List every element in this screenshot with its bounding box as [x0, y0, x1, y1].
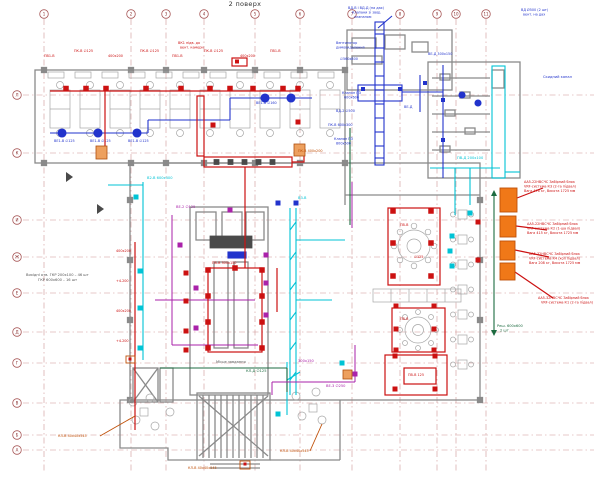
svg-text:ПК-В ∅125: ПК-В ∅125	[74, 49, 93, 53]
svg-text:В2-В 600х300: В2-В 600х300	[147, 176, 173, 180]
svg-text:ПВ-В 300х150: ПВ-В 300х150	[212, 261, 236, 265]
svg-text:ПВ1-В: ПВ1-В	[270, 49, 281, 53]
svg-text:ПК-В 400х200: ПК-В 400х200	[298, 149, 323, 153]
svg-text:ПК-В ∅125: ПК-В ∅125	[204, 49, 223, 53]
svg-text:ПВ-Д 200х100: ПВ-Д 200х100	[457, 156, 484, 160]
svg-text:ВЕ1-В ∅125: ВЕ1-В ∅125	[90, 139, 111, 143]
gray-text-layer: Вихідні отв. ГКР 200х100 – 46 штГКР 600х…	[26, 273, 246, 364]
svg-text:АА5-22НВСЧС Забірний блок: АА5-22НВСЧС Забірний блок	[524, 180, 575, 184]
svg-text:8: 8	[399, 12, 402, 17]
grid-bubbles: 1234567891011ЛКИЖЕДГВБА	[13, 10, 491, 455]
svg-text:ПК-В 600х300: ПК-В 600х300	[328, 123, 353, 127]
svg-text:10: 10	[453, 12, 459, 17]
svg-text:ГКР 600х600 – 16 шт: ГКР 600х600 – 16 шт	[38, 278, 77, 282]
walls-layer	[35, 30, 520, 468]
svg-text:КЛ-В 40х40х545: КЛ-В 40х40х545	[280, 449, 309, 453]
svg-text:Клапан ПЗ: Клапан ПЗ	[334, 137, 353, 141]
svg-text:Вага 476 кг, Висота 1725 мм: Вага 476 кг, Висота 1725 мм	[524, 189, 576, 193]
svg-text:ВЕ-Д: ВЕ-Д	[404, 105, 413, 109]
svg-text:400х200: 400х200	[116, 309, 131, 313]
svg-text:Л: Л	[15, 93, 18, 98]
svg-text:VRF-система К1 (2-га підвал): VRF-система К1 (2-га підвал)	[541, 301, 594, 305]
svg-text:1: 1	[43, 12, 46, 17]
svg-text:ПВ1-В: ПВ1-В	[44, 54, 55, 58]
svg-text:VRF-система К3 (2-га підвал): VRF-система К3 (2-га підвал)	[524, 185, 577, 189]
svg-text:400х200: 400х200	[108, 54, 123, 58]
svg-text:А: А	[16, 448, 19, 453]
svg-text:ВЕ1-В ∅160: ВЕ1-В ∅160	[256, 101, 277, 105]
svg-text:Місце завдання: Місце завдання	[216, 360, 246, 364]
svg-text:∅560х800: ∅560х800	[340, 57, 358, 61]
svg-text:600х600: 600х600	[344, 96, 359, 100]
svg-text:400х200: 400х200	[240, 54, 255, 58]
svg-text:вент. на дах: вент. на дах	[523, 13, 545, 17]
svg-text:Вага 208 кг, Висота 1725 мм: Вага 208 кг, Висота 1725 мм	[529, 261, 581, 265]
svg-text:+4.200: +4.200	[116, 279, 129, 283]
svg-text:димовидалення: димовидалення	[336, 46, 365, 50]
svg-text:300х150: 300х150	[298, 359, 315, 363]
svg-text:ВД Ø500 (2 шт): ВД Ø500 (2 шт)	[521, 7, 549, 12]
svg-text:ВЕ1-В ∅125: ВЕ1-В ∅125	[128, 139, 149, 143]
svg-text:Б: Б	[16, 433, 19, 438]
svg-text:клапаном: клапаном	[354, 15, 372, 19]
svg-text:Клапан ПЗ: Клапан ПЗ	[342, 91, 361, 95]
svg-text:АА5-32НВСЧС Забірний блок: АА5-32НВСЧС Забірний блок	[529, 252, 580, 256]
svg-text:VRF-система К2 (1-ша підвал): VRF-система К2 (1-ша підвал)	[527, 227, 581, 231]
svg-text:VRF-система К4 (хол підвал): VRF-система К4 (хол підвал)	[529, 257, 581, 261]
svg-text:ВЕ1-В ∅125: ВЕ1-В ∅125	[54, 139, 75, 143]
svg-text:ПК-В ∅125: ПК-В ∅125	[140, 49, 159, 53]
svg-text:ВД-В і ВД-Д (на дах): ВД-В і ВД-Д (на дах)	[348, 6, 385, 10]
svg-text:Реш. 600х600: Реш. 600х600	[497, 324, 524, 328]
svg-text:В: В	[16, 401, 19, 406]
svg-text:400х200: 400х200	[116, 249, 131, 253]
svg-text:вент. камери: вент. камери	[180, 46, 204, 50]
svg-text:4: 4	[203, 12, 206, 17]
svg-text:В3-В: В3-В	[298, 196, 307, 200]
svg-text:АА5-22НВСЧС Забірний блок: АА5-22НВСЧС Забірний блок	[527, 222, 578, 226]
svg-text:КЛ-В 40х40х545: КЛ-В 40х40х545	[188, 466, 217, 470]
svg-text:ПВ1-В: ПВ1-В	[172, 54, 183, 58]
plan-svg: 1234567891011ЛКИЖЕДГВБАВ2-В 600х300В3-ВП…	[0, 0, 600, 484]
svg-text:Клапани зі звор.: Клапани зі звор.	[352, 11, 381, 15]
svg-text:Вихідні отв. ГКР 200х100 – 46: Вихідні отв. ГКР 200х100 – 46 шт	[26, 273, 89, 277]
svg-text:К: К	[16, 151, 19, 156]
svg-text:2: 2	[130, 12, 133, 17]
svg-text:ПВ-В 125: ПВ-В 125	[408, 373, 424, 377]
floor-plan-canvas: 2 поверх 1234567891011ЛКИЖЕДГВБАВ2-В 600…	[0, 0, 600, 484]
svg-text:2 шт: 2 шт	[500, 329, 509, 333]
svg-text:ПВ-В: ПВ-В	[400, 223, 409, 227]
svg-text:+4.200: +4.200	[116, 339, 129, 343]
svg-text:800х500: 800х500	[336, 142, 351, 146]
svg-text:9: 9	[436, 12, 439, 17]
svg-text:ВЕ-3 ∅250: ВЕ-3 ∅250	[326, 384, 346, 388]
svg-text:АА5-32НВСЧС Забірний блок: АА5-32НВСЧС Забірний блок	[538, 296, 589, 300]
svg-text:И: И	[16, 218, 19, 223]
svg-text:КЛ-В 40х40х545: КЛ-В 40х40х545	[58, 434, 87, 438]
svg-text:6: 6	[299, 12, 302, 17]
svg-text:ПВ-В: ПВ-В	[400, 317, 409, 321]
svg-text:Вага 415 кг, Висота 1725 мм: Вага 415 кг, Висота 1725 мм	[527, 231, 579, 235]
svg-text:ВК1 підв. до: ВК1 підв. до	[178, 41, 200, 45]
svg-text:ВД-2 ∅500: ВД-2 ∅500	[336, 109, 355, 113]
svg-text:3: 3	[165, 12, 168, 17]
svg-text:ВЕ-Д 300х150: ВЕ-Д 300х150	[428, 52, 452, 56]
svg-text:5: 5	[254, 12, 257, 17]
svg-text:∅125: ∅125	[414, 255, 423, 259]
svg-text:Д: Д	[15, 330, 18, 335]
dark-fixtures-layer	[66, 160, 275, 249]
svg-text:Скидний канал: Скидний канал	[543, 75, 572, 79]
svg-text:ВЕ-2 ∅125: ВЕ-2 ∅125	[176, 205, 195, 209]
svg-text:Ж: Ж	[15, 255, 20, 260]
svg-text:11: 11	[483, 12, 489, 17]
svg-text:Вентилятор: Вентилятор	[336, 41, 357, 45]
svg-text:КЛ-Д ∅125: КЛ-Д ∅125	[246, 369, 267, 373]
